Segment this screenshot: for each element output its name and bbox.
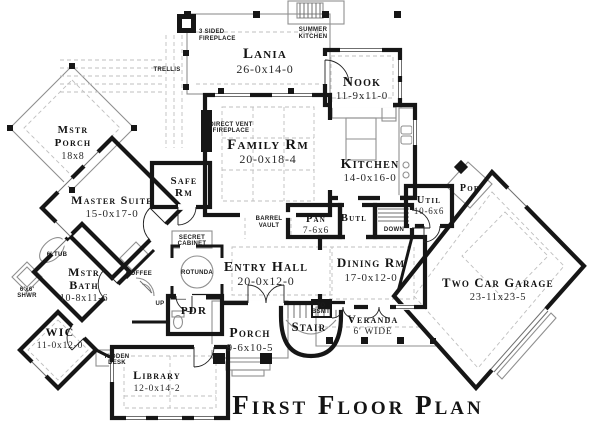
room-label-entry: Entry Hall	[224, 260, 308, 275]
room-dims-entry: 20-0x12-0	[237, 274, 294, 288]
room-dims-master: 15-0x17-0	[85, 208, 138, 220]
room-label-dining: Dining Rm	[337, 255, 405, 270]
note-summer-2: KITCHEN	[299, 34, 328, 40]
room-label-veranda: Veranda	[348, 314, 399, 326]
note-coffee: COFFEE	[126, 271, 152, 277]
room-label-stair: Stair	[292, 320, 327, 334]
room-dims-nook: 11-9x11-0	[336, 90, 388, 102]
note-trellis: TRELLIS	[153, 67, 180, 73]
room-label-mstr-porch-1: Mstr	[58, 124, 89, 136]
room-dims-veranda: 6' WIDE	[353, 327, 392, 337]
note-shwr-2: SHWR	[17, 293, 37, 299]
floor-plan-page: Lania 26-0x14-0 Nook 11-9x11-0 Family Rm…	[0, 0, 600, 430]
note-rotunda: ROTUNDA	[181, 270, 213, 276]
room-label-safe-1: Safe	[171, 175, 198, 187]
room-dims-porch: 9-6x10-5	[227, 342, 274, 354]
note-tub: 6' TUB	[47, 252, 68, 258]
room-dims-lania: 26-0x14-0	[236, 62, 293, 76]
room-label-bath-2: Bath	[69, 278, 99, 292]
note-down: DOWN	[384, 227, 404, 233]
room-label-pdr: PDR	[181, 305, 207, 317]
room-dims-family: 20-0x18-4	[239, 152, 296, 166]
room-dims-library: 12-0x14-2	[134, 384, 181, 394]
kitchen-island-icon	[346, 118, 376, 160]
note-barrel-2: VAULT	[259, 223, 280, 229]
room-label-pan: Pan	[306, 214, 326, 225]
note-3sided-1: 3 SIDED	[199, 29, 225, 35]
room-label-por: Por	[460, 183, 480, 194]
room-label-bath-1: Mstr	[68, 265, 100, 279]
note-secret-2: CABINET	[178, 241, 207, 247]
trellis-vertical-dashes	[166, 35, 182, 148]
room-label-butl: Butl	[341, 213, 367, 224]
room-label-lania: Lania	[243, 46, 287, 62]
room-label-garage: Two Car Garage	[442, 276, 554, 290]
note-up: UP	[156, 301, 165, 307]
kitchen-walls	[330, 105, 415, 198]
room-label-porch: Porch	[229, 325, 270, 340]
room-dims-pan: 7-6x6	[303, 226, 329, 236]
room-label-mstr-porch-2: Porch	[55, 137, 92, 149]
family-fireplace-icon	[201, 110, 212, 152]
room-dims-kitchen: 14-0x16-0	[343, 172, 396, 184]
note-3sided-2: FIREPLACE	[199, 36, 236, 42]
note-tobsmt-2: BSMT	[312, 309, 330, 315]
room-label-library: Library	[133, 368, 181, 382]
room-label-wic: WIC	[46, 325, 75, 339]
porch-step-2	[232, 370, 264, 376]
note-vent-2: FIREPLACE	[213, 128, 250, 134]
room-label-kitchen: Kitchen	[341, 157, 400, 172]
garage-step	[497, 313, 556, 379]
por-post	[454, 160, 468, 174]
room-label-util: Util	[417, 195, 441, 206]
up-stair-icon	[136, 278, 154, 296]
veranda-posts	[326, 337, 436, 344]
room-label-safe-2: Rm	[175, 187, 193, 199]
plan-title: First Floor Plan	[232, 390, 483, 420]
floor-plan-canvas: Lania 26-0x14-0 Nook 11-9x11-0 Family Rm…	[0, 0, 600, 430]
note-summer-1: SUMMER	[299, 27, 328, 33]
room-dims-util: 10-6x6	[414, 206, 444, 216]
library-door	[194, 347, 214, 367]
room-dims-garage: 23-11x23-5	[470, 292, 527, 303]
three-sided-fireplace-inner	[182, 19, 191, 28]
note-desk-2: DESK	[108, 360, 126, 366]
room-dims-wic: 11-0x12-0	[37, 341, 83, 351]
room-label-master: Master Suite	[71, 193, 153, 207]
room-label-nook: Nook	[343, 75, 381, 90]
trellis-horizontal-dashes	[60, 60, 164, 92]
library-ceiling-grid	[124, 356, 216, 408]
room-label-family: Family Rm	[227, 137, 309, 153]
room-dims-dining: 17-0x12-0	[344, 272, 397, 284]
room-dims-bath: 10-8x11-6	[60, 293, 109, 304]
room-dims-mstr-porch: 18x8	[61, 151, 84, 162]
summer-kitchen-grill-icon	[297, 3, 323, 18]
note-barrel-1: BARREL	[256, 216, 283, 222]
